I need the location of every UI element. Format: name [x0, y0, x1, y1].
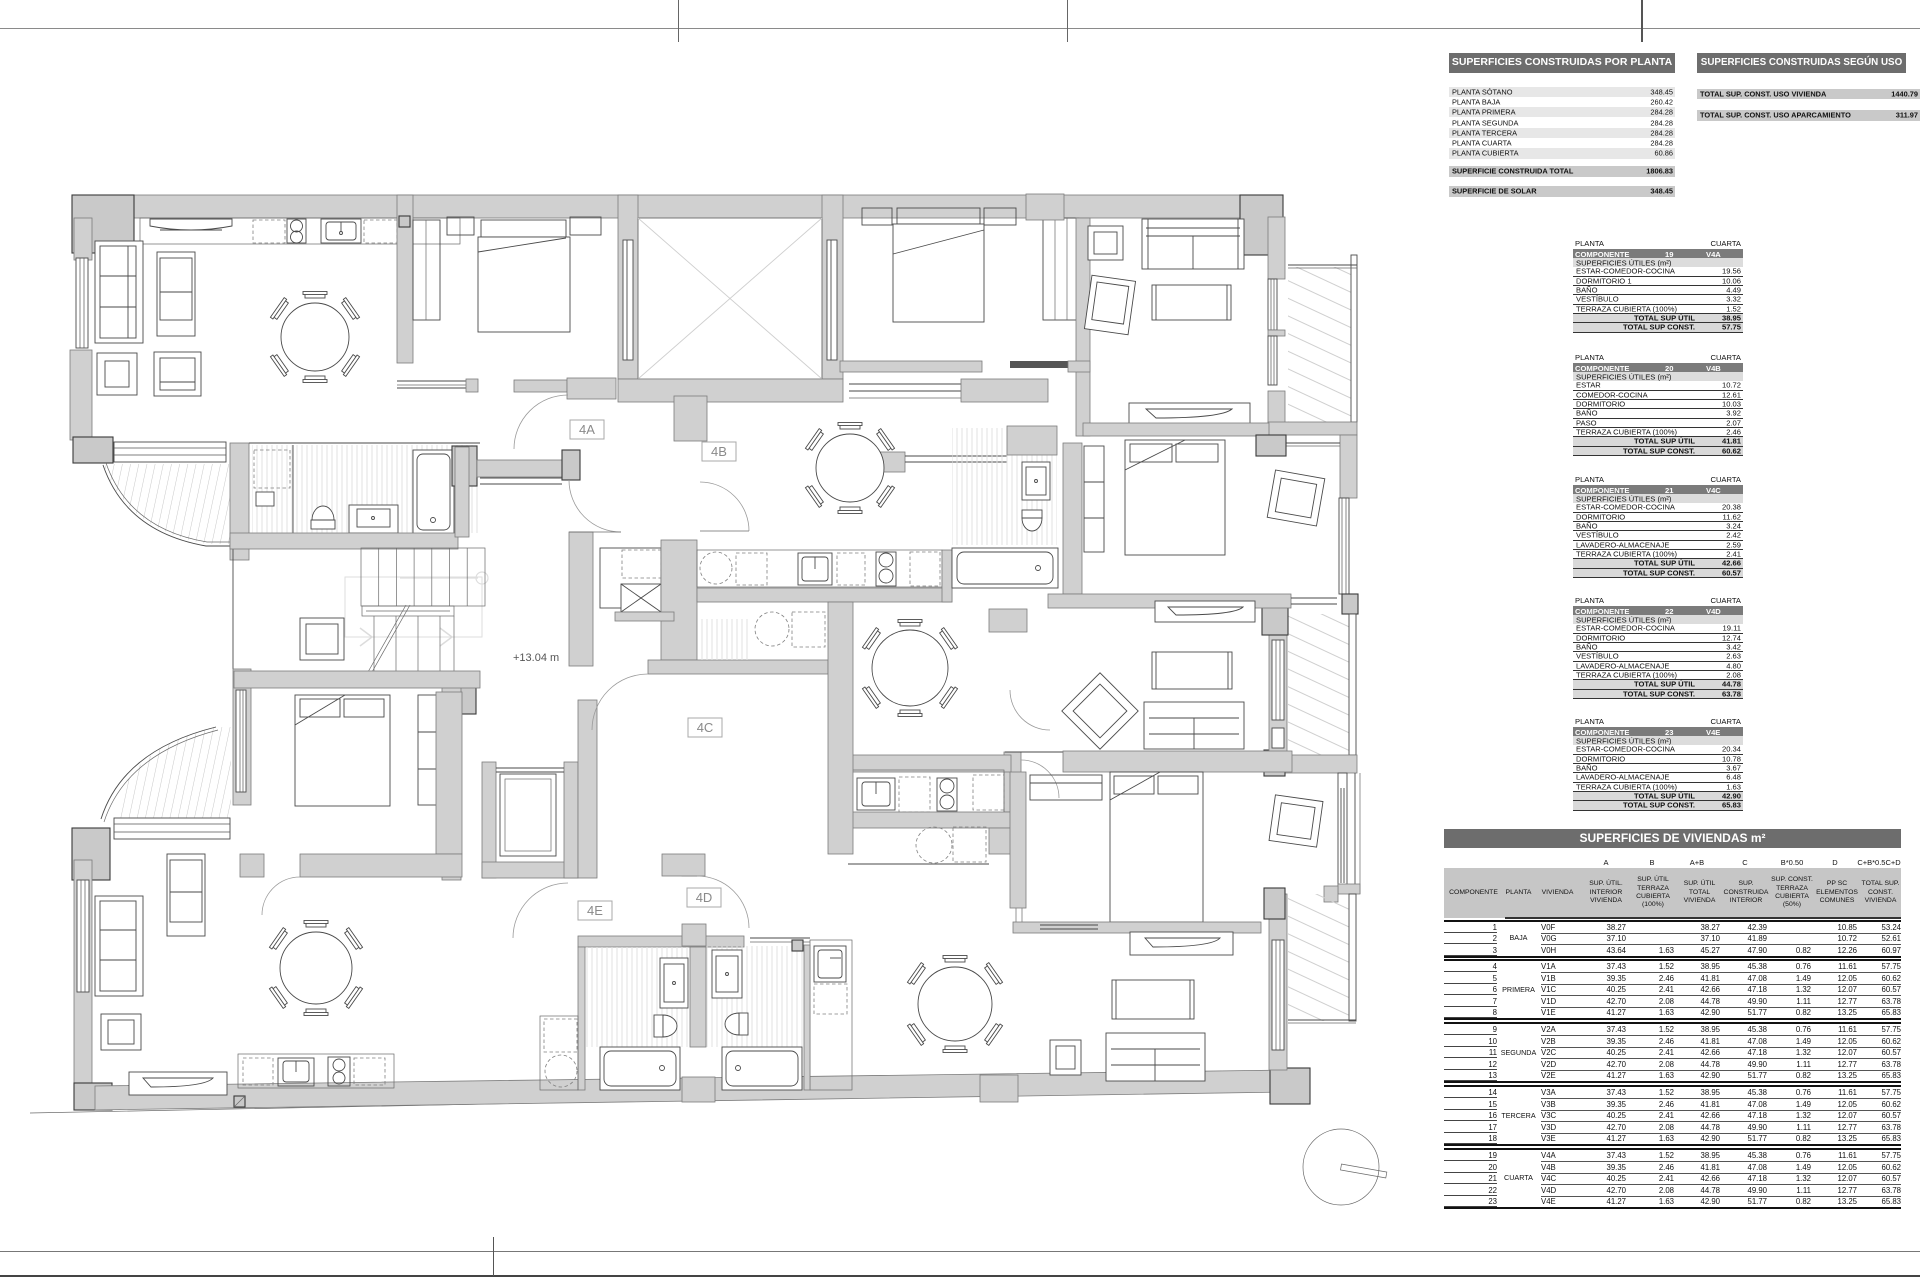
svg-text:4A: 4A: [579, 422, 595, 437]
svg-text:4C: 4C: [697, 720, 714, 735]
svg-text:4B: 4B: [711, 444, 727, 459]
svg-text:4E: 4E: [587, 903, 603, 918]
svg-text:4D: 4D: [696, 890, 713, 905]
svg-text:+13.04 m: +13.04 m: [513, 652, 559, 664]
